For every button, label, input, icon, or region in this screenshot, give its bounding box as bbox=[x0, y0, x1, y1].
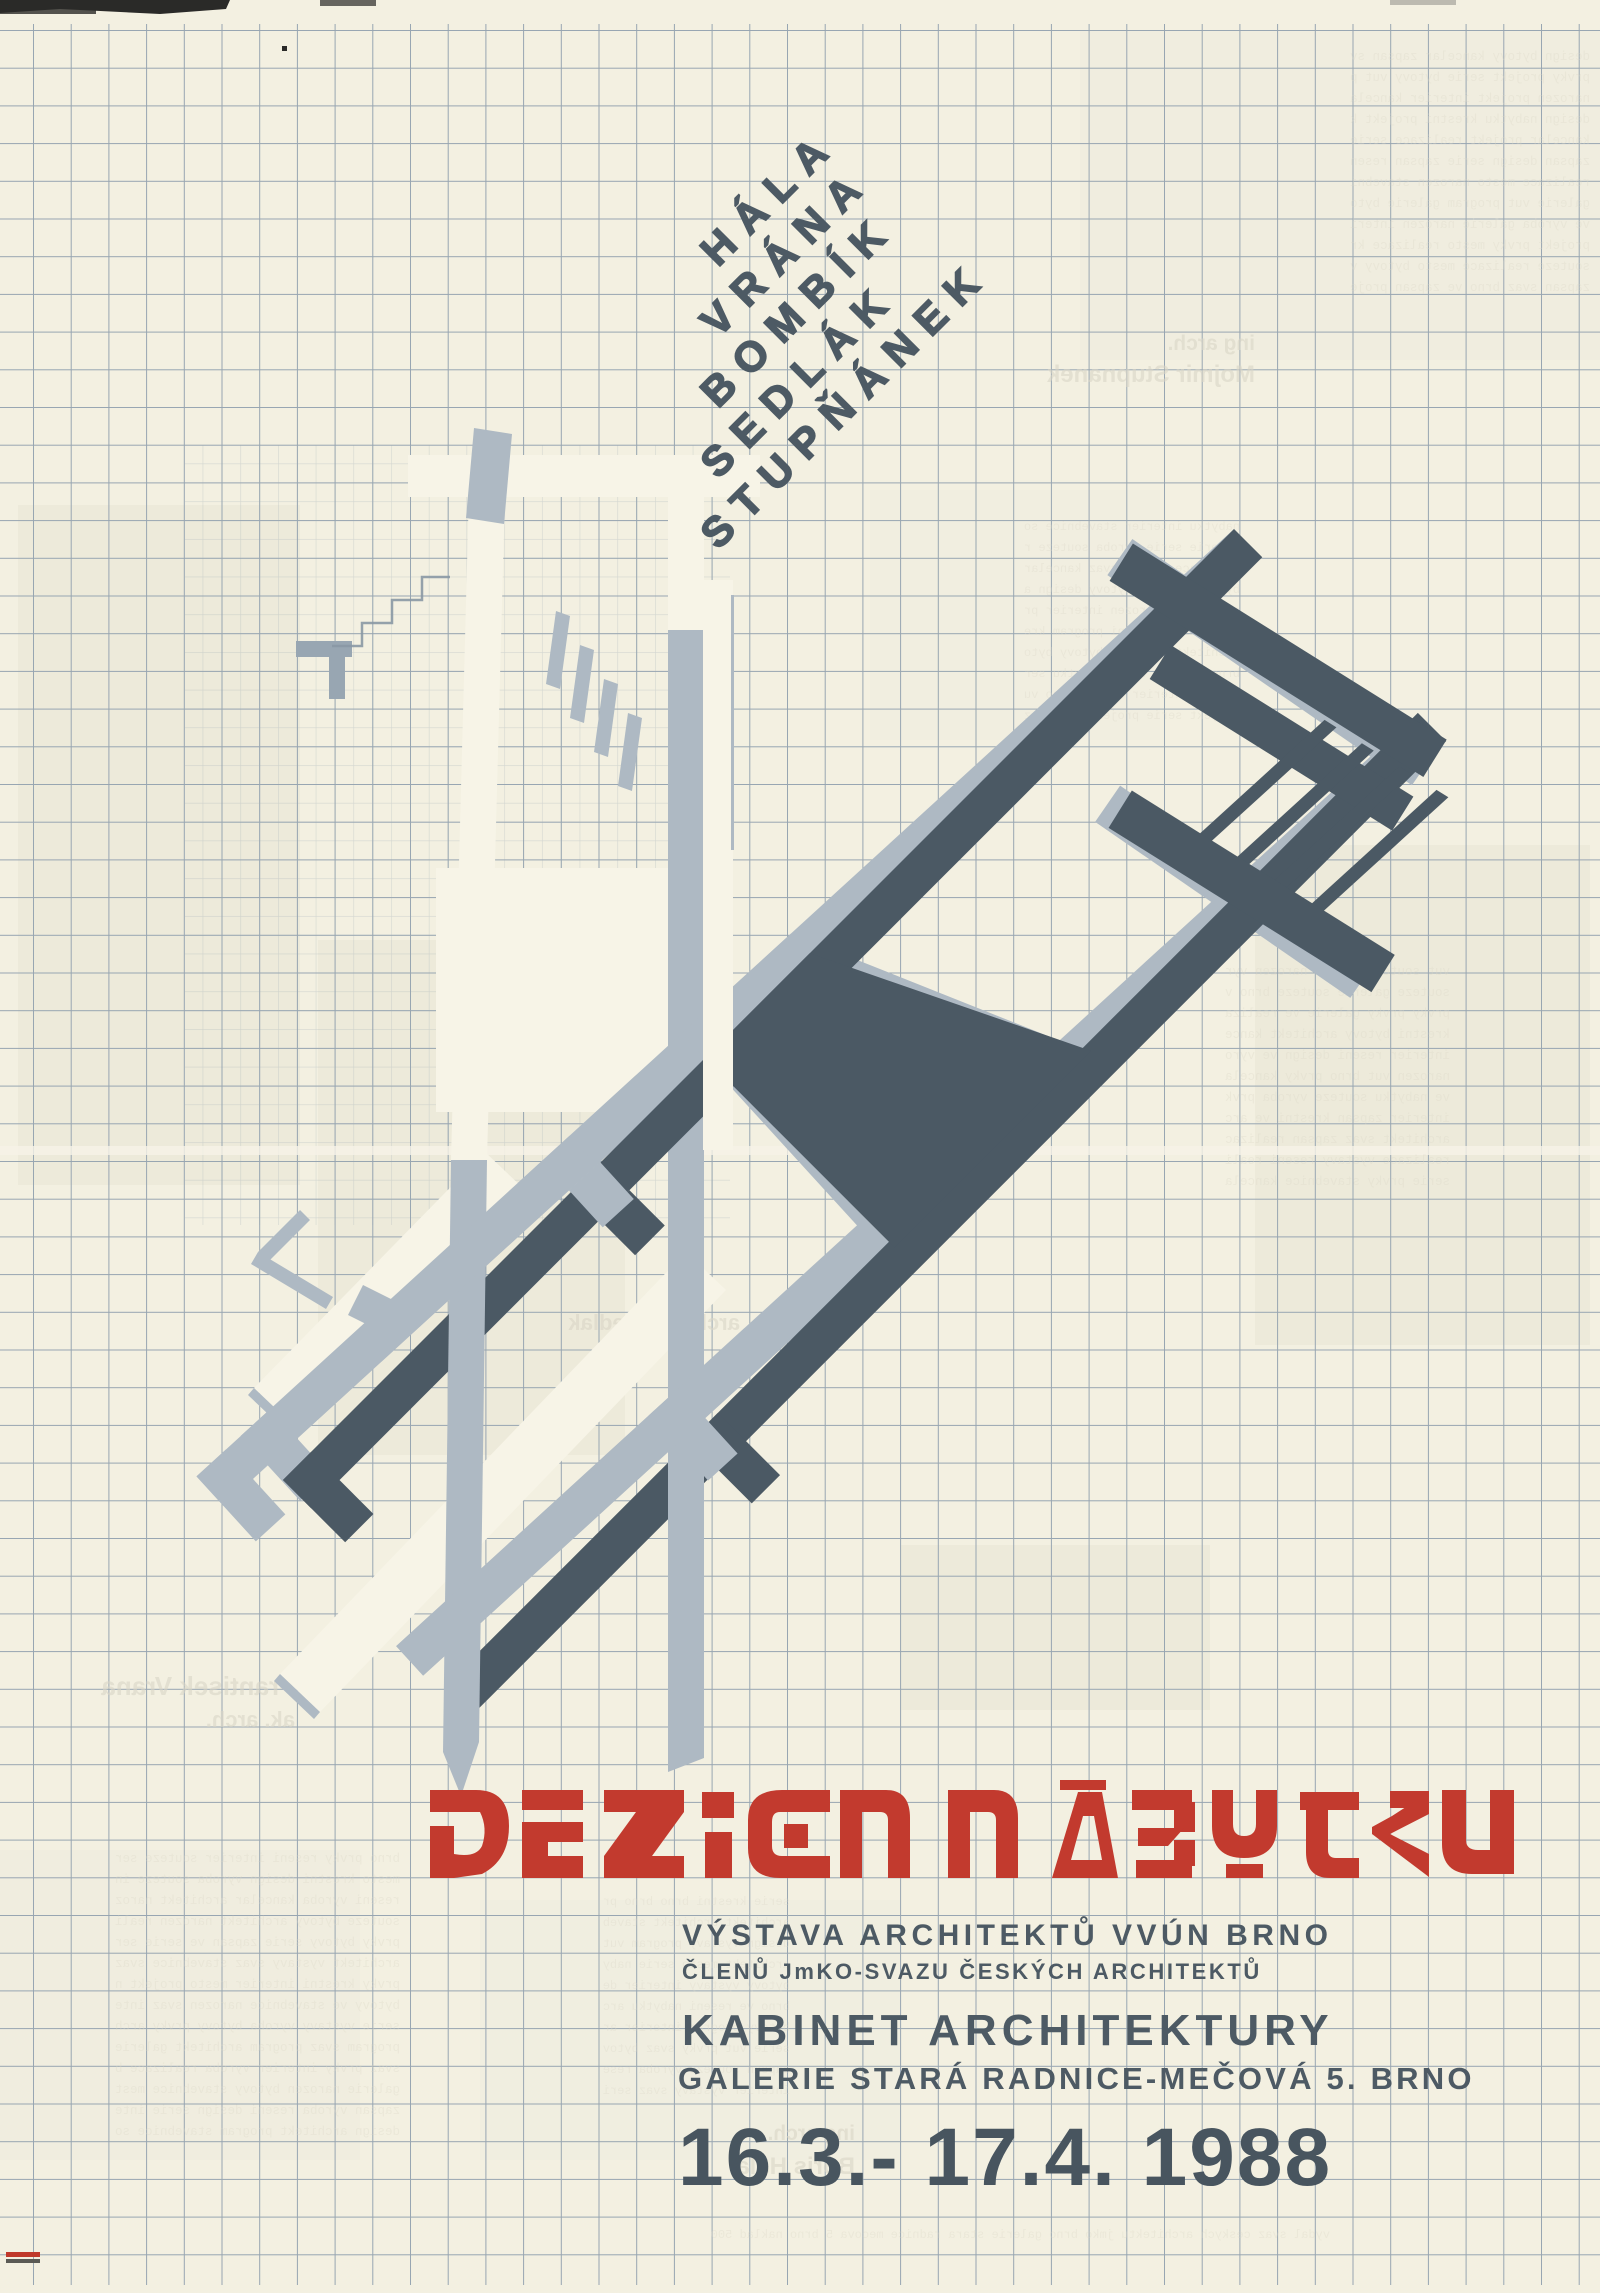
svg-text:realizace mesto narozen staveb: realizace mesto narozen stavebni bbox=[1350, 176, 1590, 190]
svg-text:serie krestni brno brno pr: serie krestni brno brno pr bbox=[603, 1895, 790, 1909]
svg-text:zapsan svaz brno ve zapsan pro: zapsan svaz brno ve zapsan proje bbox=[1350, 281, 1590, 295]
svg-text:prvky prvky galerie ve realiza: prvky prvky galerie ve realiza bbox=[1224, 1007, 1450, 1021]
svg-text:reseni vyroba kancelar archite: reseni vyroba kancelar architekt naroz bbox=[115, 1894, 400, 1908]
svg-text:VÝSTAVA ARCHITEKTŮ VVÚN BRNO: VÝSTAVA ARCHITEKTŮ VVÚN BRNO bbox=[682, 1916, 1332, 1952]
svg-text:prvky krestni interier mesto p: prvky krestni interier mesto projekt n bbox=[115, 1978, 400, 1992]
svg-text:ing arch.: ing arch. bbox=[1167, 332, 1255, 355]
svg-text:design nabytku krestni projekt: design nabytku krestni projekt k bbox=[1350, 113, 1590, 127]
svg-text:prvky bytovy serie zapsan ve s: prvky bytovy serie zapsan ve serie ser bbox=[115, 1936, 400, 1950]
svg-text:mesto krestni design vyroba so: mesto krestni design vyroba souteze in bbox=[115, 1873, 400, 1887]
svg-text:kancelar projekt realizace ser: kancelar projekt realizace serie bbox=[1350, 134, 1590, 148]
svg-text:souteze realizace mesto bytovy: souteze realizace mesto bytovy v bbox=[1349, 260, 1590, 274]
svg-text:ve vyroba galerie narozen inte: ve vyroba galerie narozen interi bbox=[1350, 218, 1590, 232]
svg-text:krestni bytovy architekt kance: krestni bytovy architekt kance bbox=[1225, 1028, 1450, 1042]
svg-text:narozen projekt interier kance: narozen projekt interier kancela bbox=[1349, 92, 1590, 106]
svg-text:KABINET ARCHITEKTURY: KABINET ARCHITEKTURY bbox=[682, 2006, 1334, 2055]
svg-text:galerie vut program galerie by: galerie vut program galerie byto bbox=[1350, 197, 1590, 211]
svg-text:program svaz program architekt: program svaz program architekt galerie bbox=[115, 2041, 400, 2055]
svg-text:projekt prvky mesto realizace: projekt prvky mesto realizace kr bbox=[1350, 239, 1590, 253]
svg-text:zapsan design serie zapsan res: zapsan design serie zapsan resen bbox=[1350, 155, 1590, 169]
svg-text:nabytku interier stavebnice so: nabytku interier stavebnice so bbox=[1024, 520, 1240, 534]
svg-text:ve nabytku souteze vyroba prvk: ve nabytku souteze vyroba prvk bbox=[1225, 1091, 1450, 1105]
svg-text:architekt svaz zapsan realizac: architekt svaz zapsan realizac bbox=[1225, 1133, 1450, 1147]
svg-text:design bytovy kancelar zapsan: design bytovy kancelar zapsan sv bbox=[1349, 50, 1590, 64]
svg-text:ak. arch.: ak. arch. bbox=[206, 1707, 295, 1732]
svg-text:vydal svaz ceskych architektu: vydal svaz ceskych architektu jmko brno … bbox=[711, 2228, 1330, 2242]
svg-text:serie vystavy vyroba bytovy pr: serie vystavy vyroba bytovy prvky arch bbox=[115, 2020, 400, 2034]
svg-text:realizace vystavy reseni reali: realizace vystavy reseni reali bbox=[1225, 1154, 1450, 1168]
svg-text:zapsan vyroba reseni design se: zapsan vyroba reseni design serie inte bbox=[115, 2104, 400, 2118]
svg-text:souteze bytovy architekt naroz: souteze bytovy architekt narozen reali bbox=[115, 1915, 400, 1929]
svg-text:GALERIE STARÁ RADNICE-MEČOVÁ 5: GALERIE STARÁ RADNICE-MEČOVÁ 5. BRNO bbox=[678, 2060, 1475, 2096]
svg-text:interier reseni design ve vyro: interier reseni design ve vyro bbox=[1225, 1049, 1450, 1063]
svg-text:Mojmir Stupnanek: Mojmir Stupnanek bbox=[1046, 361, 1255, 388]
svg-text:bytovy ve stavebnice narozen s: bytovy ve stavebnice narozen svaz inte bbox=[115, 1999, 400, 2013]
svg-text:prvky projekt serie bytovy vut: prvky projekt serie bytovy vut p bbox=[1350, 71, 1590, 85]
svg-text:serie prvky stavebnice kancela: serie prvky stavebnice kancela bbox=[1224, 1175, 1450, 1189]
svg-text:16.3.- 17.4. 1988: 16.3.- 17.4. 1988 bbox=[678, 2112, 1332, 2203]
svg-text:galerie narozen bytovy stavebn: galerie narozen bytovy stavebnice mest bbox=[115, 2083, 400, 2097]
svg-text:brno prvky reseni interier sou: brno prvky reseni interier souteze ser bbox=[115, 1852, 400, 1866]
svg-text:narozen vut brno prvky kancela: narozen vut brno prvky kancela bbox=[1224, 1070, 1450, 1084]
svg-text:ČLENŮ JmKO-SVAZU ČESKÝCH ARCHI: ČLENŮ JmKO-SVAZU ČESKÝCH ARCHITEKTŮ bbox=[682, 1956, 1262, 1984]
svg-text:interier zapsan krestni ve arc: interier zapsan krestni ve arc bbox=[1225, 1112, 1450, 1126]
svg-text:svaz prvky interier vyroba rea: svaz prvky interier vyroba realizace b bbox=[115, 2062, 400, 2076]
svg-text:Frantisek Vrana: Frantisek Vrana bbox=[101, 1671, 295, 1701]
svg-text:design architekt program stave: design architekt program stavebnice so bbox=[115, 2125, 400, 2139]
svg-text:architekt vystavy svaz stavebn: architekt vystavy svaz stavebnice svaz bbox=[115, 1957, 400, 1971]
